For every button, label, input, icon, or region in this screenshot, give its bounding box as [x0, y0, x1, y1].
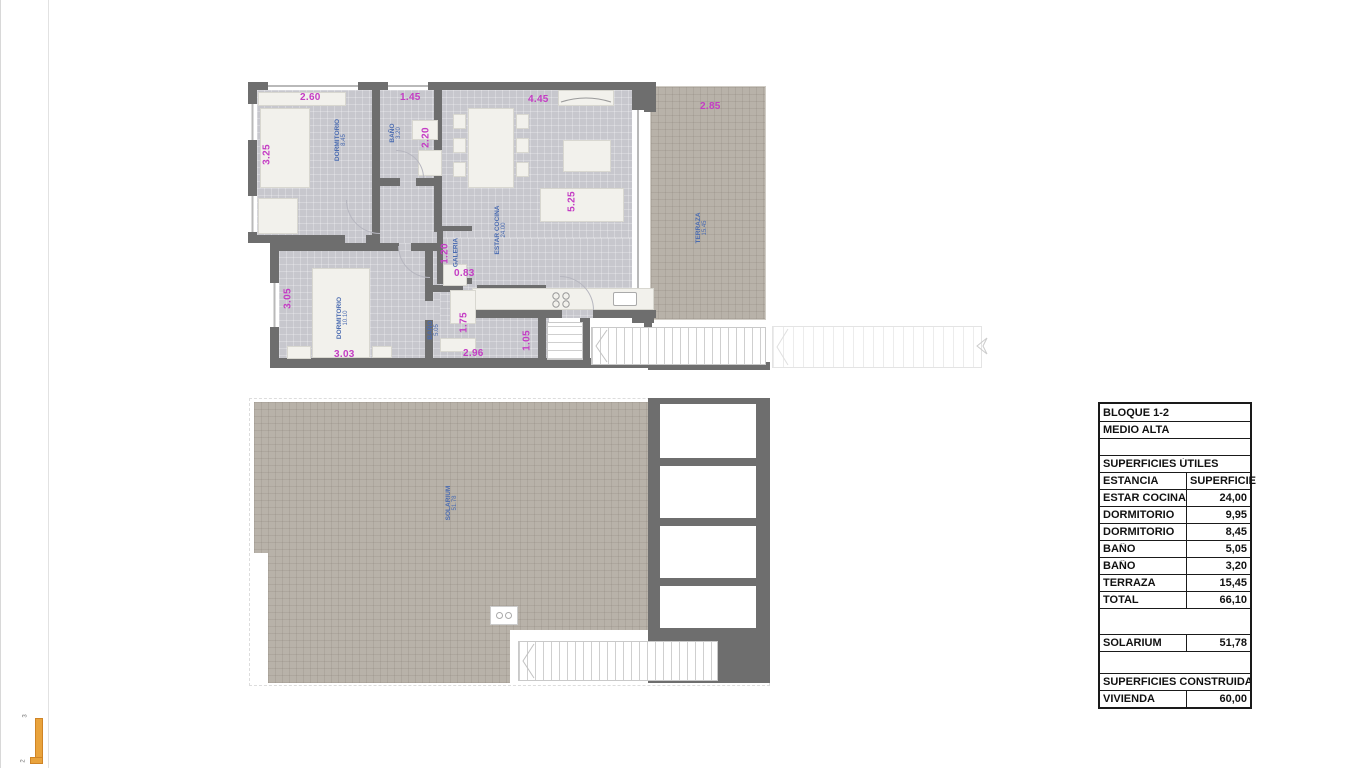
wall-segment: [466, 310, 562, 318]
direction-arrow-icon: [974, 336, 990, 356]
table-cell: TERRAZA: [1100, 577, 1186, 589]
table-row: BLOQUE 1-2: [1100, 404, 1250, 421]
dimension-label: 1.75: [459, 310, 470, 336]
table-row: VIVIENDA60,00: [1100, 690, 1250, 707]
dimension-label: 3.03: [334, 349, 355, 360]
table-cell: VIVIENDA: [1100, 693, 1186, 705]
room-area: 3.20: [396, 103, 403, 163]
stairs: [518, 641, 718, 681]
dimension-label: 3.05: [283, 286, 294, 312]
stairs: [547, 322, 583, 360]
room-name: BAÑO: [389, 103, 396, 163]
dimension-label: 5.25: [567, 189, 578, 215]
room-area: 51.78: [452, 468, 459, 538]
table-row: MEDIO ALTA: [1100, 421, 1250, 438]
room-name: TERRAZA: [695, 198, 702, 258]
room-label-galeria: GALERIA: [453, 223, 460, 283]
table-row: BAÑO5,05: [1100, 540, 1250, 557]
window: [248, 196, 257, 232]
table-header-row: ESTANCIA SUPERFICIE: [1100, 472, 1250, 489]
room-label-bano-1: BAÑO 3.20: [389, 103, 403, 163]
wall-segment: [372, 178, 400, 186]
table-cell: 66,10: [1186, 592, 1250, 608]
furniture-chair: [516, 138, 529, 153]
table-cell: SOLARIUM: [1100, 637, 1186, 649]
room-area: 5.05: [434, 300, 441, 360]
room-area: 15.45: [702, 198, 709, 258]
table-cell: DORMITORIO: [1100, 526, 1186, 538]
window: [388, 82, 428, 90]
dimension-label: 1.45: [400, 92, 421, 103]
room-label-solarium: SOLARIUM 51.78: [445, 468, 459, 538]
room-label-bano-2: BAÑO 5.05: [427, 300, 441, 360]
table-cell: SUPERFICIES ÚTILES: [1100, 458, 1250, 470]
furniture-chair: [453, 114, 466, 129]
table-cell: DORMITORIO: [1100, 509, 1186, 521]
room-name: DORMITORIO: [336, 288, 343, 348]
dimension-label: 1.05: [522, 328, 533, 354]
room-name: DORMITORIO: [334, 110, 341, 170]
window: [248, 104, 257, 140]
wall-segment: [279, 243, 399, 251]
table-cell: 3,20: [1186, 558, 1250, 574]
wall-segment: [366, 235, 380, 243]
table-cell: 5,05: [1186, 541, 1250, 557]
core-opening: [660, 404, 756, 458]
dimension-label: 1.20: [440, 241, 451, 267]
room-label-terraza: TERRAZA 15.45: [695, 198, 709, 258]
table-row: SUPERFICIES ÚTILES: [1100, 455, 1250, 472]
furniture-console: [558, 90, 614, 106]
table-cell: TOTAL: [1100, 594, 1186, 606]
furniture-nightstand: [287, 346, 311, 359]
table-cell: 15,45: [1186, 575, 1250, 591]
table-row: ESTAR COCINA24,00: [1100, 489, 1250, 506]
dimension-label: 2.20: [421, 125, 432, 151]
table-row-blank: [1100, 608, 1250, 634]
skylight-circle: [505, 612, 512, 619]
table-row: TERRAZA15,45: [1100, 574, 1250, 591]
dimension-label: 3.25: [262, 142, 273, 168]
stairs-arrow-icon: [520, 642, 536, 680]
table-cell: BAÑO: [1100, 543, 1186, 555]
table-row: SOLARIUM51,78: [1100, 634, 1250, 651]
dimension-label: 2.60: [300, 92, 321, 103]
table-row: DORMITORIO8,45: [1100, 523, 1250, 540]
table-cell: 8,45: [1186, 524, 1250, 540]
stairs-arrow-icon: [774, 327, 790, 367]
core-opening: [660, 466, 756, 518]
room-area: 24.00: [501, 200, 508, 260]
window: [268, 82, 358, 90]
table-cell: 60,00: [1186, 691, 1250, 707]
wall-segment: [593, 310, 656, 318]
external-stairs: [772, 326, 982, 368]
stairs-arrow-icon: [593, 328, 609, 364]
table-cell: MEDIO ALTA: [1100, 424, 1250, 436]
stairs: [591, 327, 766, 365]
dimension-label: 4.45: [528, 94, 549, 105]
table-cell: BAÑO: [1100, 560, 1186, 572]
room-label-estar-cocina: ESTAR COCINA 24.00: [494, 200, 508, 260]
glass-door: [632, 110, 644, 315]
table-cell: 51,78: [1186, 635, 1250, 651]
dimension-label: 2.85: [700, 101, 721, 112]
room-area: 10.10: [343, 288, 350, 348]
wall-segment: [257, 235, 345, 243]
furniture-chair: [453, 162, 466, 177]
skylight-circle: [496, 612, 503, 619]
table-row: BAÑO3,20: [1100, 557, 1250, 574]
table-cell: BLOQUE 1-2: [1100, 407, 1250, 419]
area-table: BLOQUE 1-2 MEDIO ALTA SUPERFICIES ÚTILES…: [1098, 402, 1252, 709]
page-edge: [0, 0, 1, 768]
table-row: DORMITORIO9,95: [1100, 506, 1250, 523]
margin-mark-bottom: 2: [21, 759, 27, 762]
furniture-chair: [516, 162, 529, 177]
core-opening: [660, 526, 756, 578]
wall-segment: [632, 82, 646, 110]
dimension-label: 2.96: [463, 348, 484, 359]
table-cell: ESTANCIA: [1100, 475, 1186, 487]
furniture-dining-table: [468, 108, 514, 188]
table-cell: 9,95: [1186, 507, 1250, 523]
table-row-blank: [1100, 651, 1250, 673]
furniture-tv-unit: [563, 140, 611, 172]
table-cell: 24,00: [1186, 490, 1250, 506]
table-cell: SUPERFICIE: [1186, 473, 1250, 489]
furniture-chair: [453, 138, 466, 153]
margin-mark-top: 3: [23, 714, 29, 717]
table-cell: SUPERFICIES CONSTRUIDAS: [1100, 676, 1250, 688]
room-name: ESTAR COCINA: [494, 200, 501, 260]
skylight-box: [490, 606, 518, 625]
room-name: BAÑO: [427, 300, 434, 360]
room-name: SOLARIUM: [445, 468, 452, 538]
table-cell: ESTAR COCINA: [1100, 492, 1186, 504]
room-label-dormitorio-2: DORMITORIO 10.10: [336, 288, 350, 348]
furniture-nightstand: [372, 346, 392, 358]
room-name: GALERIA: [453, 223, 460, 283]
kitchen-sink: [613, 292, 637, 306]
table-row: SUPERFICIES CONSTRUIDAS: [1100, 673, 1250, 690]
sheet-margin-line: [48, 0, 49, 768]
window: [270, 283, 279, 327]
core-opening: [660, 586, 756, 628]
floor-plan-apartment: 2.60 1.45 4.45 2.85 3.25 2.20 5.25 3.05 …: [248, 78, 998, 378]
furniture-dresser: [258, 198, 298, 234]
table-row-blank: [1100, 438, 1250, 455]
margin-scale-bar-foot: [30, 757, 43, 764]
wall-segment: [372, 82, 380, 186]
wall-segment: [416, 178, 442, 186]
floor-plan-solarium: SOLARIUM 51.78: [248, 395, 778, 695]
room-label-dormitorio-1: DORMITORIO 8.45: [334, 110, 348, 170]
console-curve: [559, 91, 613, 105]
room-area: 8.45: [341, 110, 348, 170]
table-row: TOTAL66,10: [1100, 591, 1250, 608]
furniture-chair: [516, 114, 529, 129]
furniture-sofa: [540, 188, 624, 222]
